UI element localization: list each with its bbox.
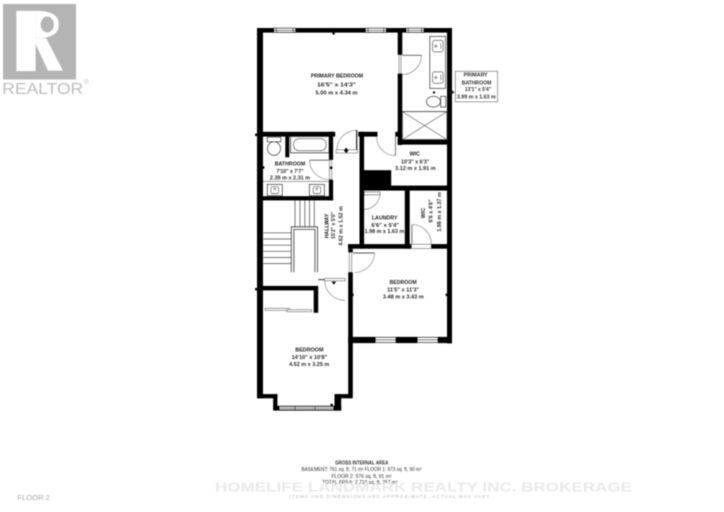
- svg-text:5.00 m x 4.34 m: 5.00 m x 4.34 m: [316, 91, 358, 97]
- svg-text:HALLWAY: HALLWAY: [325, 214, 331, 239]
- svg-text:13'1" x 5'4": 13'1" x 5'4": [465, 87, 492, 93]
- svg-text:BATHROOM: BATHROOM: [275, 161, 306, 167]
- svg-text:ITEMS AND DIMENSIONS ARE APPRO: ITEMS AND DIMENSIONS ARE APPROXIMATE, AC…: [289, 494, 490, 499]
- svg-text:3.48 m x 3.43 m: 3.48 m x 3.43 m: [383, 294, 424, 300]
- svg-text:10'3" x 6'3": 10'3" x 6'3": [401, 159, 430, 165]
- svg-text:11'5" x 11'3": 11'5" x 11'3": [387, 288, 419, 294]
- svg-text:3.12 m x 1.91 m: 3.12 m x 1.91 m: [395, 166, 436, 172]
- svg-text:4.62 m x 1.52 m: 4.62 m x 1.52 m: [339, 206, 345, 246]
- svg-text:2.39 m x 2.31 m: 2.39 m x 2.31 m: [270, 175, 310, 181]
- svg-text:HOMELIFE LANDMARK REALTY INC.: HOMELIFE LANDMARK REALTY INC. BROKERAGE: [215, 480, 632, 494]
- svg-text:REALTOR: REALTOR: [2, 81, 83, 98]
- svg-text:16'5" x 14'3": 16'5" x 14'3": [317, 82, 356, 88]
- svg-text:7'10" x 7'7": 7'10" x 7'7": [276, 169, 304, 175]
- svg-text:PRIMARY: PRIMARY: [464, 72, 489, 78]
- svg-text:BASEMENT: 761 sq. ft, 71 m² FL: BASEMENT: 761 sq. ft, 71 m² FLOOR 1: 973…: [301, 467, 421, 473]
- svg-text:FLOOR 2: 976 sq. ft, 91 m²: FLOOR 2: 976 sq. ft, 91 m²: [331, 474, 391, 480]
- svg-text:4.52 m x 3.25 m: 4.52 m x 3.25 m: [289, 362, 329, 368]
- svg-text:6'6" x 5'4": 6'6" x 5'4": [371, 223, 399, 229]
- svg-text:6'6 x 4'6": 6'6 x 4'6": [429, 199, 435, 222]
- svg-text:®: ®: [84, 78, 89, 86]
- svg-text:BEDROOM: BEDROOM: [390, 280, 417, 286]
- svg-text:LAUNDRY: LAUNDRY: [372, 215, 398, 221]
- svg-text:14'10" x 10'8": 14'10" x 10'8": [292, 355, 328, 361]
- svg-text:3.99 m x 1.63 m: 3.99 m x 1.63 m: [457, 94, 496, 100]
- svg-text:15'2" x 5'0": 15'2" x 5'0": [331, 212, 337, 239]
- svg-text:WIC: WIC: [421, 207, 427, 218]
- svg-text:1.98 m x 1.37 m: 1.98 m x 1.37 m: [437, 192, 443, 232]
- svg-text:BEDROOM: BEDROOM: [295, 348, 323, 354]
- svg-text:FLOOR 2: FLOOR 2: [17, 493, 49, 502]
- svg-text:GROSS INTERNAL AREA: GROSS INTERNAL AREA: [335, 460, 389, 466]
- svg-text:1.98 m x 1.63 m: 1.98 m x 1.63 m: [365, 229, 405, 235]
- svg-text:WIC: WIC: [409, 151, 420, 157]
- svg-text:BATHROOM: BATHROOM: [462, 80, 492, 86]
- svg-text:PRIMARY BEDROOM: PRIMARY BEDROOM: [311, 74, 363, 80]
